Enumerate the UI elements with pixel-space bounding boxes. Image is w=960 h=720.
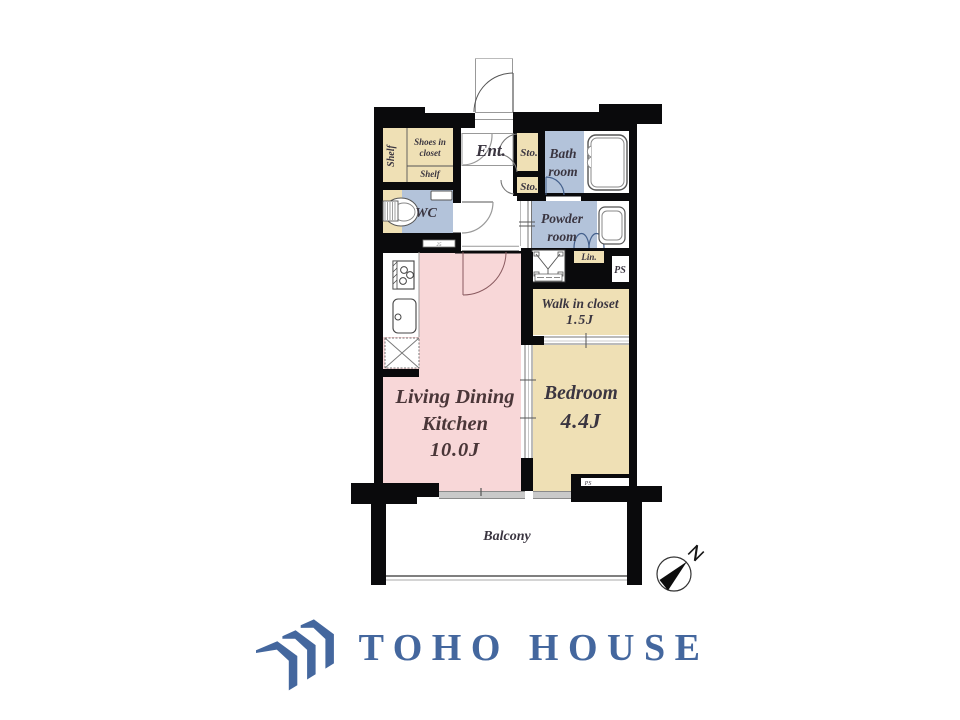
svg-text:Shelf: Shelf: [386, 143, 397, 166]
svg-text:1.5J: 1.5J: [566, 313, 594, 328]
svg-text:4.4J: 4.4J: [560, 409, 602, 433]
svg-text:Bedroom: Bedroom: [543, 383, 618, 404]
svg-text:Lin.: Lin.: [580, 252, 596, 262]
svg-text:Sto.: Sto.: [520, 147, 537, 159]
svg-text:WC: WC: [415, 206, 437, 221]
svg-text:PS: PS: [614, 265, 626, 276]
svg-text:TOHO HOUSE: TOHO HOUSE: [359, 627, 710, 669]
svg-text:10.0J: 10.0J: [430, 439, 480, 461]
svg-text:PS: PS: [584, 481, 592, 487]
svg-text:Powder: Powder: [541, 211, 584, 226]
svg-text:closet: closet: [420, 148, 441, 158]
svg-text:Ent.: Ent.: [475, 141, 506, 160]
svg-text:Shelf: Shelf: [420, 169, 441, 179]
svg-text:Shoes in: Shoes in: [414, 137, 446, 147]
svg-text:Kitchen: Kitchen: [421, 413, 488, 435]
svg-text:25: 25: [437, 243, 443, 248]
svg-text:Bath: Bath: [548, 146, 576, 161]
svg-text:Balcony: Balcony: [482, 529, 531, 544]
svg-text:Living Dining: Living Dining: [394, 386, 514, 408]
svg-text:Sto.: Sto.: [520, 181, 537, 193]
svg-text:room: room: [548, 164, 577, 179]
svg-text:Walk in closet: Walk in closet: [541, 296, 619, 311]
svg-text:room: room: [547, 229, 576, 244]
